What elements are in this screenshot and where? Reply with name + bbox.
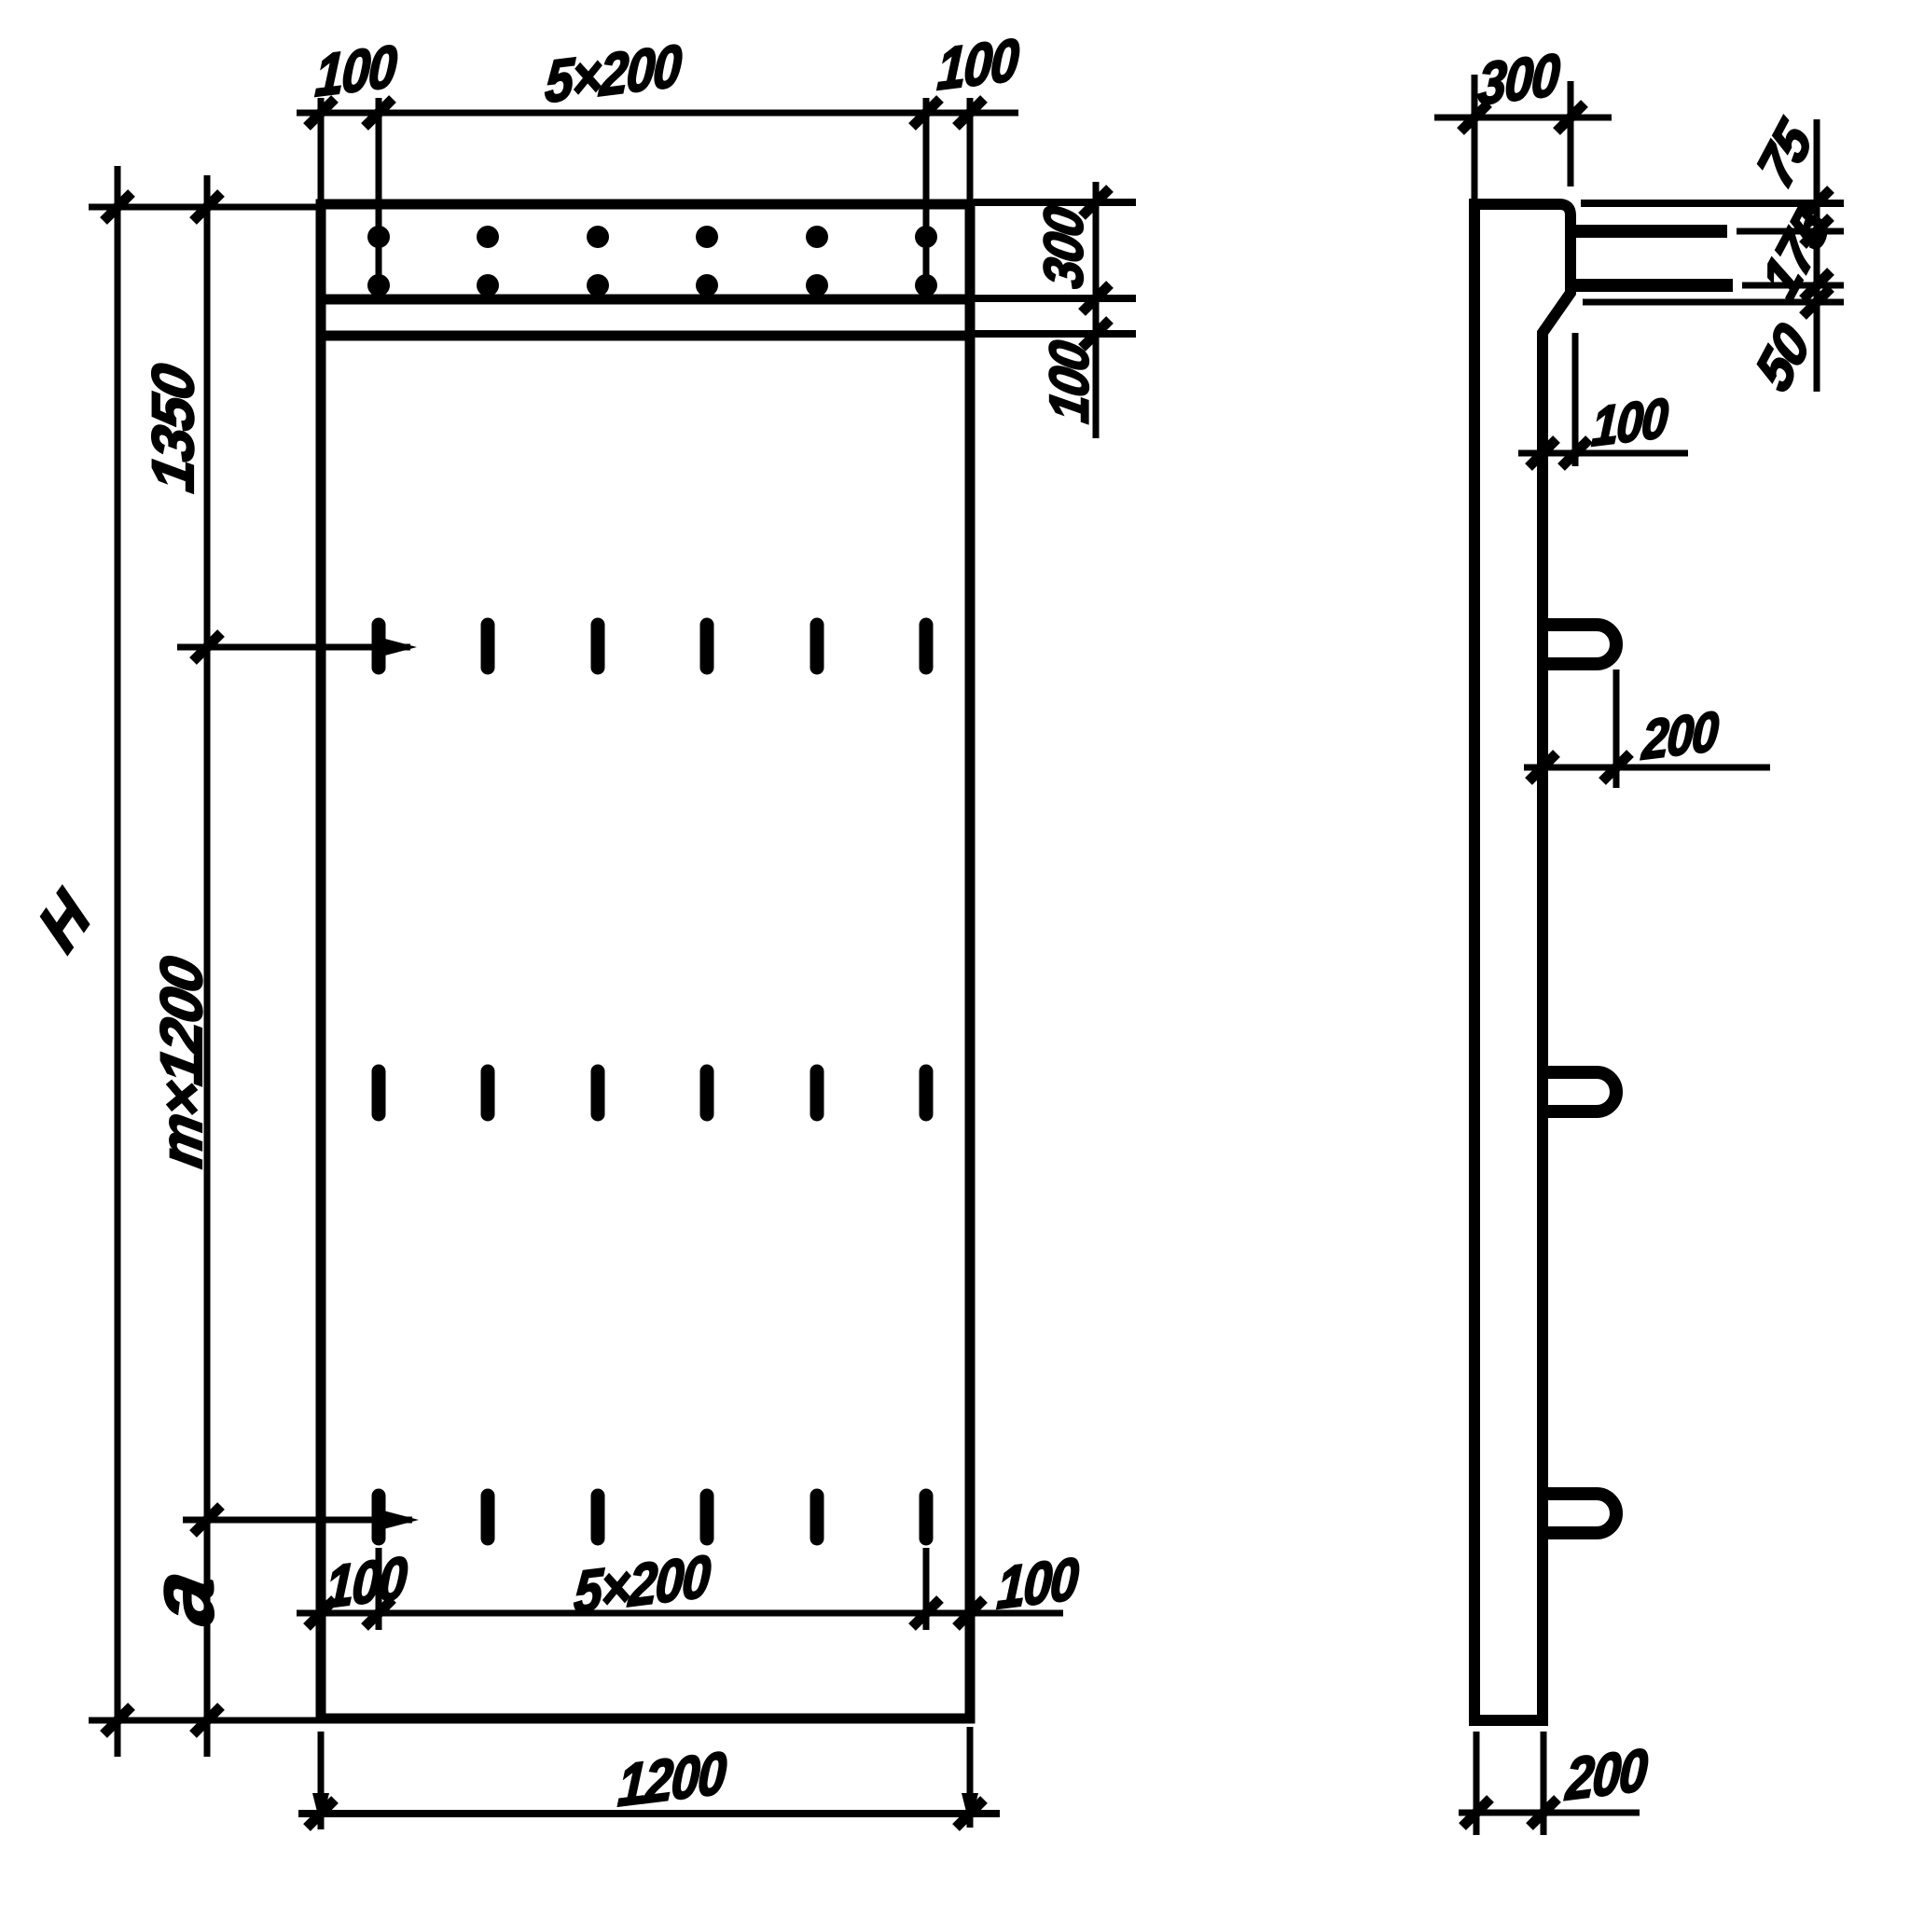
svg-text:100: 100	[995, 1545, 1080, 1622]
svg-text:100: 100	[935, 26, 1020, 103]
svg-text:200: 200	[1563, 1736, 1649, 1814]
svg-text:200: 200	[1640, 700, 1720, 772]
svg-text:300: 300	[1032, 202, 1094, 292]
svg-text:1200: 1200	[616, 1739, 727, 1819]
svg-text:100: 100	[324, 1544, 408, 1621]
svg-text:300: 300	[1476, 41, 1561, 118]
svg-text:m×1200: m×1200	[149, 953, 214, 1172]
svg-text:100: 100	[1038, 337, 1100, 426]
svg-text:100: 100	[1590, 387, 1669, 459]
svg-text:100: 100	[313, 33, 398, 110]
svg-text:1350: 1350	[141, 360, 205, 496]
